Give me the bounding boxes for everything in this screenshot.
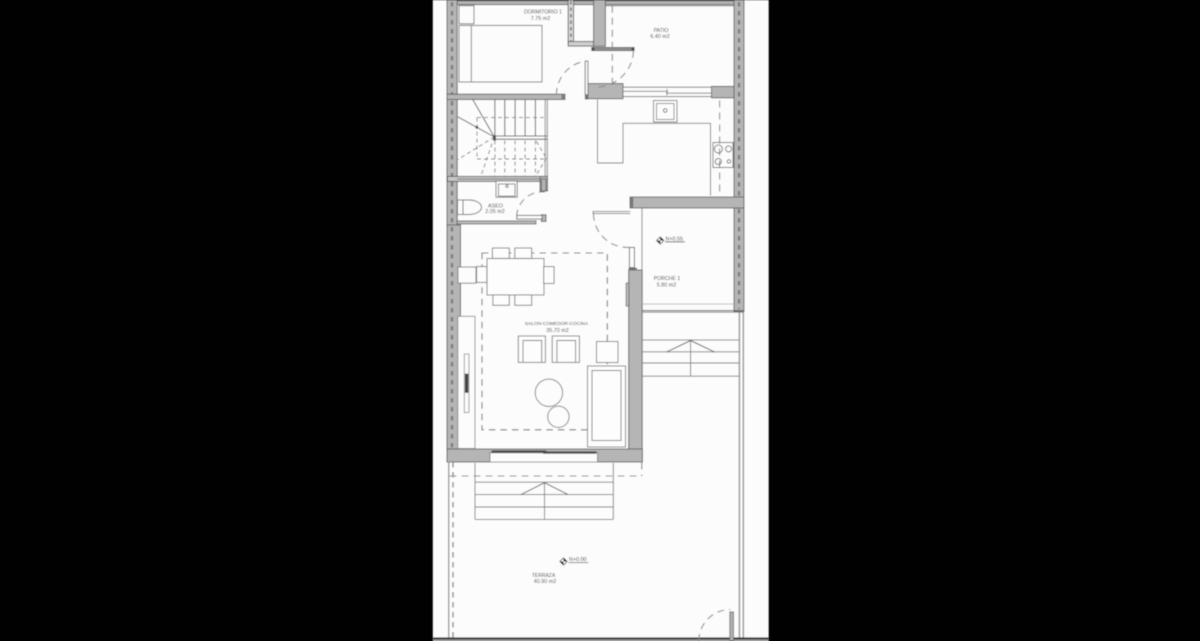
svg-text:7.75 m2: 7.75 m2 <box>531 16 550 22</box>
svg-text:PORCHE 1: PORCHE 1 <box>654 276 681 282</box>
svg-text:6.40 m2: 6.40 m2 <box>650 34 669 40</box>
svg-text:DORMITORIO 1: DORMITORIO 1 <box>524 9 562 15</box>
svg-text:5.80 m2: 5.80 m2 <box>657 283 676 289</box>
svg-text:2.05 m2: 2.05 m2 <box>485 209 504 215</box>
svg-text:40.90 m2: 40.90 m2 <box>534 579 556 585</box>
svg-text:SALON-COMEDOR-COCINA: SALON-COMEDOR-COCINA <box>525 321 589 327</box>
svg-text:35.70 m2: 35.70 m2 <box>546 328 568 334</box>
